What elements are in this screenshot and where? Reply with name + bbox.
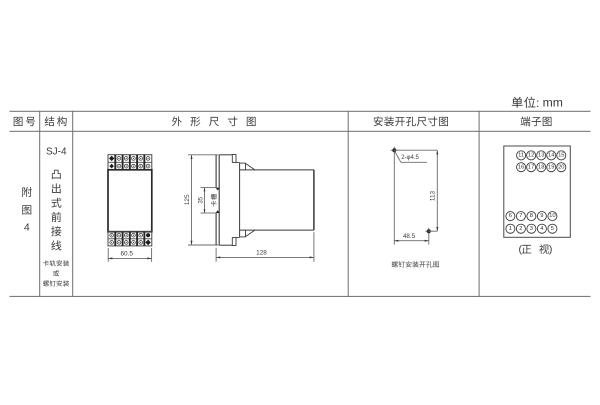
svg-text:125: 125: [184, 194, 191, 205]
svg-text:17: 17: [528, 164, 534, 170]
svg-text:5: 5: [551, 226, 554, 232]
svg-text:128: 128: [256, 250, 267, 257]
svg-text:4: 4: [24, 221, 30, 233]
svg-text:14: 14: [548, 153, 555, 159]
svg-text:SJ-4: SJ-4: [46, 146, 67, 157]
svg-text:2-φ4.5: 2-φ4.5: [401, 155, 419, 161]
svg-text:48.5: 48.5: [403, 233, 416, 240]
svg-text:1: 1: [509, 226, 512, 232]
svg-text:16: 16: [518, 164, 524, 170]
svg-text::: :: [536, 96, 539, 110]
svg-text:10: 10: [549, 213, 555, 219]
svg-text:20: 20: [558, 164, 564, 170]
svg-text:12: 12: [528, 153, 534, 159]
svg-text:mm: mm: [543, 96, 563, 110]
svg-text:9: 9: [540, 213, 543, 219]
svg-text:19: 19: [548, 164, 554, 170]
svg-text:11: 11: [518, 153, 524, 159]
svg-text:18: 18: [538, 164, 544, 170]
svg-text:15: 15: [558, 153, 564, 159]
svg-text:6: 6: [509, 213, 512, 219]
svg-text:): ): [549, 243, 553, 255]
svg-text:2: 2: [519, 226, 522, 232]
svg-text:113: 113: [430, 190, 437, 201]
svg-text:60.5: 60.5: [120, 251, 133, 258]
svg-text:8: 8: [530, 213, 533, 219]
svg-text:35: 35: [198, 196, 205, 203]
svg-text:13: 13: [538, 153, 544, 159]
svg-text:(: (: [518, 243, 522, 255]
svg-text:3: 3: [530, 226, 533, 232]
svg-text:7: 7: [519, 213, 522, 219]
